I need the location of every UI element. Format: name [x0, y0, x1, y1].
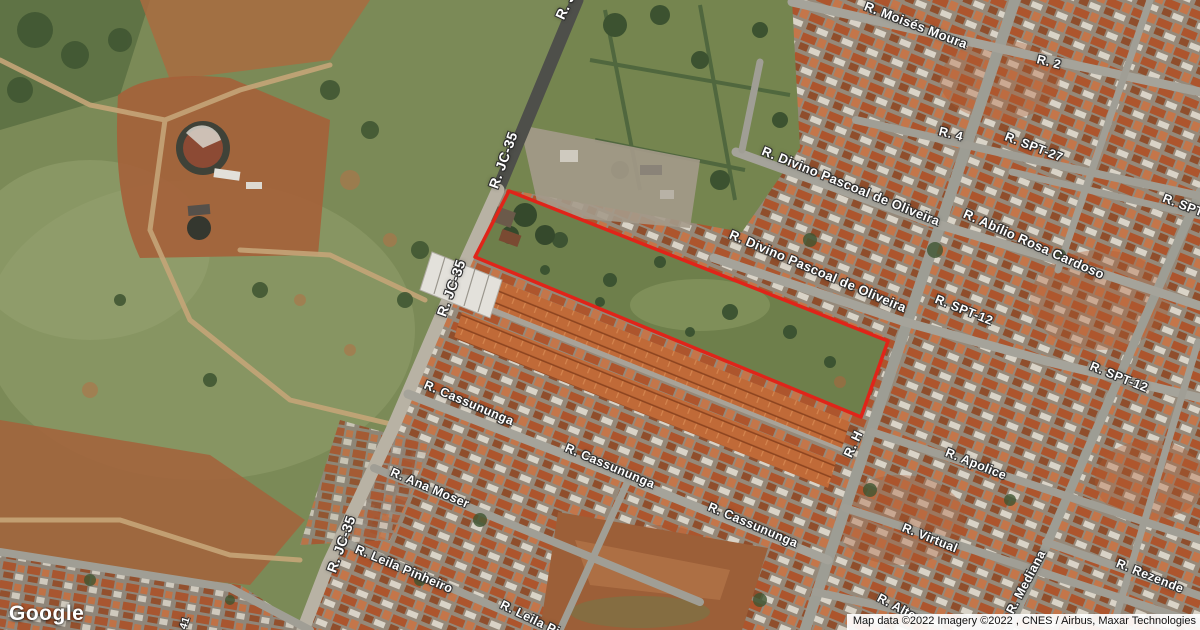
satellite-imagery-layer [0, 0, 1200, 630]
map-attribution: Map data ©2022 Imagery ©2022 , CNES / Ai… [847, 614, 1200, 630]
google-logo[interactable]: Google [9, 602, 84, 626]
map-canvas[interactable]: R. Moisés MouraR. 2R. 4R. SPT-27R. SPT-R… [0, 0, 1200, 630]
